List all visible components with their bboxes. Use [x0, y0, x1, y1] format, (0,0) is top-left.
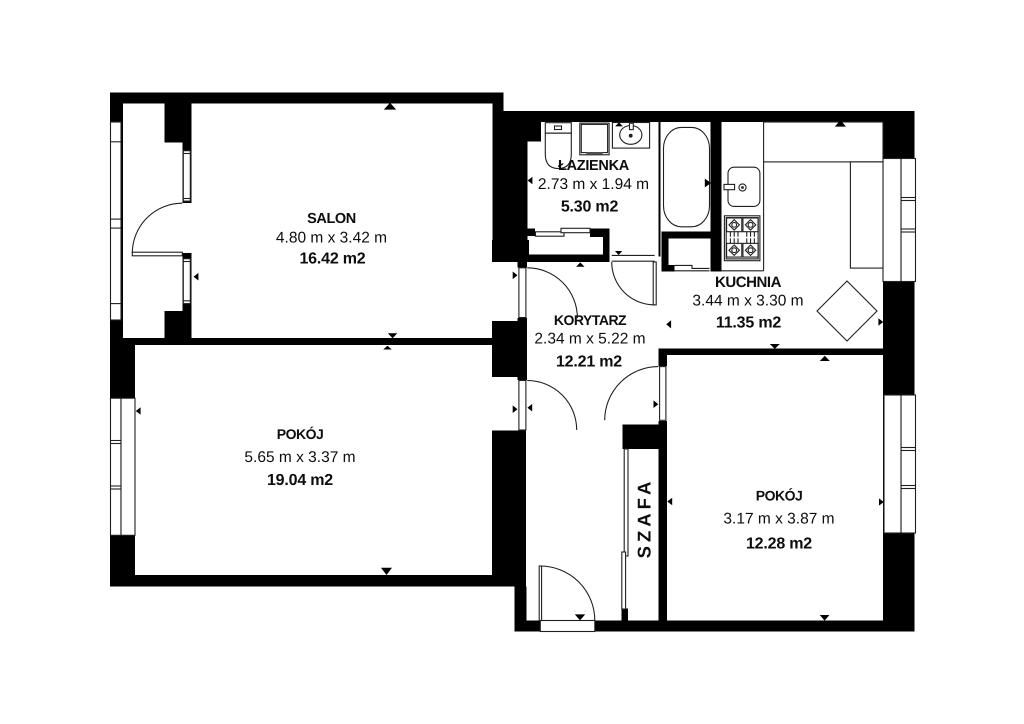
svg-text:SZAFA: SZAFA [634, 478, 655, 559]
svg-text:2.34 m x 5.22 m: 2.34 m x 5.22 m [534, 331, 645, 348]
svg-text:16.42 m2: 16.42 m2 [299, 251, 365, 268]
svg-text:POKÓJ: POKÓJ [756, 488, 803, 504]
svg-text:2.73 m x 1.94 m: 2.73 m x 1.94 m [538, 176, 649, 193]
svg-text:KORYTARZ: KORYTARZ [554, 312, 627, 328]
svg-text:KUCHNIA: KUCHNIA [715, 274, 782, 291]
svg-text:3.17 m x 3.87 m: 3.17 m x 3.87 m [723, 511, 834, 528]
svg-text:12.21 m2: 12.21 m2 [556, 354, 622, 371]
svg-text:5.30 m2: 5.30 m2 [561, 199, 619, 216]
svg-text:5.65 m x 3.37 m: 5.65 m x 3.37 m [244, 449, 355, 466]
svg-text:POKÓJ: POKÓJ [277, 426, 324, 442]
svg-text:ŁAZIENKA: ŁAZIENKA [558, 158, 630, 174]
svg-text:SALON: SALON [307, 211, 356, 227]
svg-text:3.44 m x 3.30 m: 3.44 m x 3.30 m [692, 293, 803, 310]
svg-text:12.28 m2: 12.28 m2 [746, 536, 812, 553]
svg-text:4.80 m x 3.42 m: 4.80 m x 3.42 m [276, 229, 387, 246]
svg-text:11.35 m2: 11.35 m2 [716, 315, 781, 332]
svg-text:19.04 m2: 19.04 m2 [267, 472, 333, 489]
